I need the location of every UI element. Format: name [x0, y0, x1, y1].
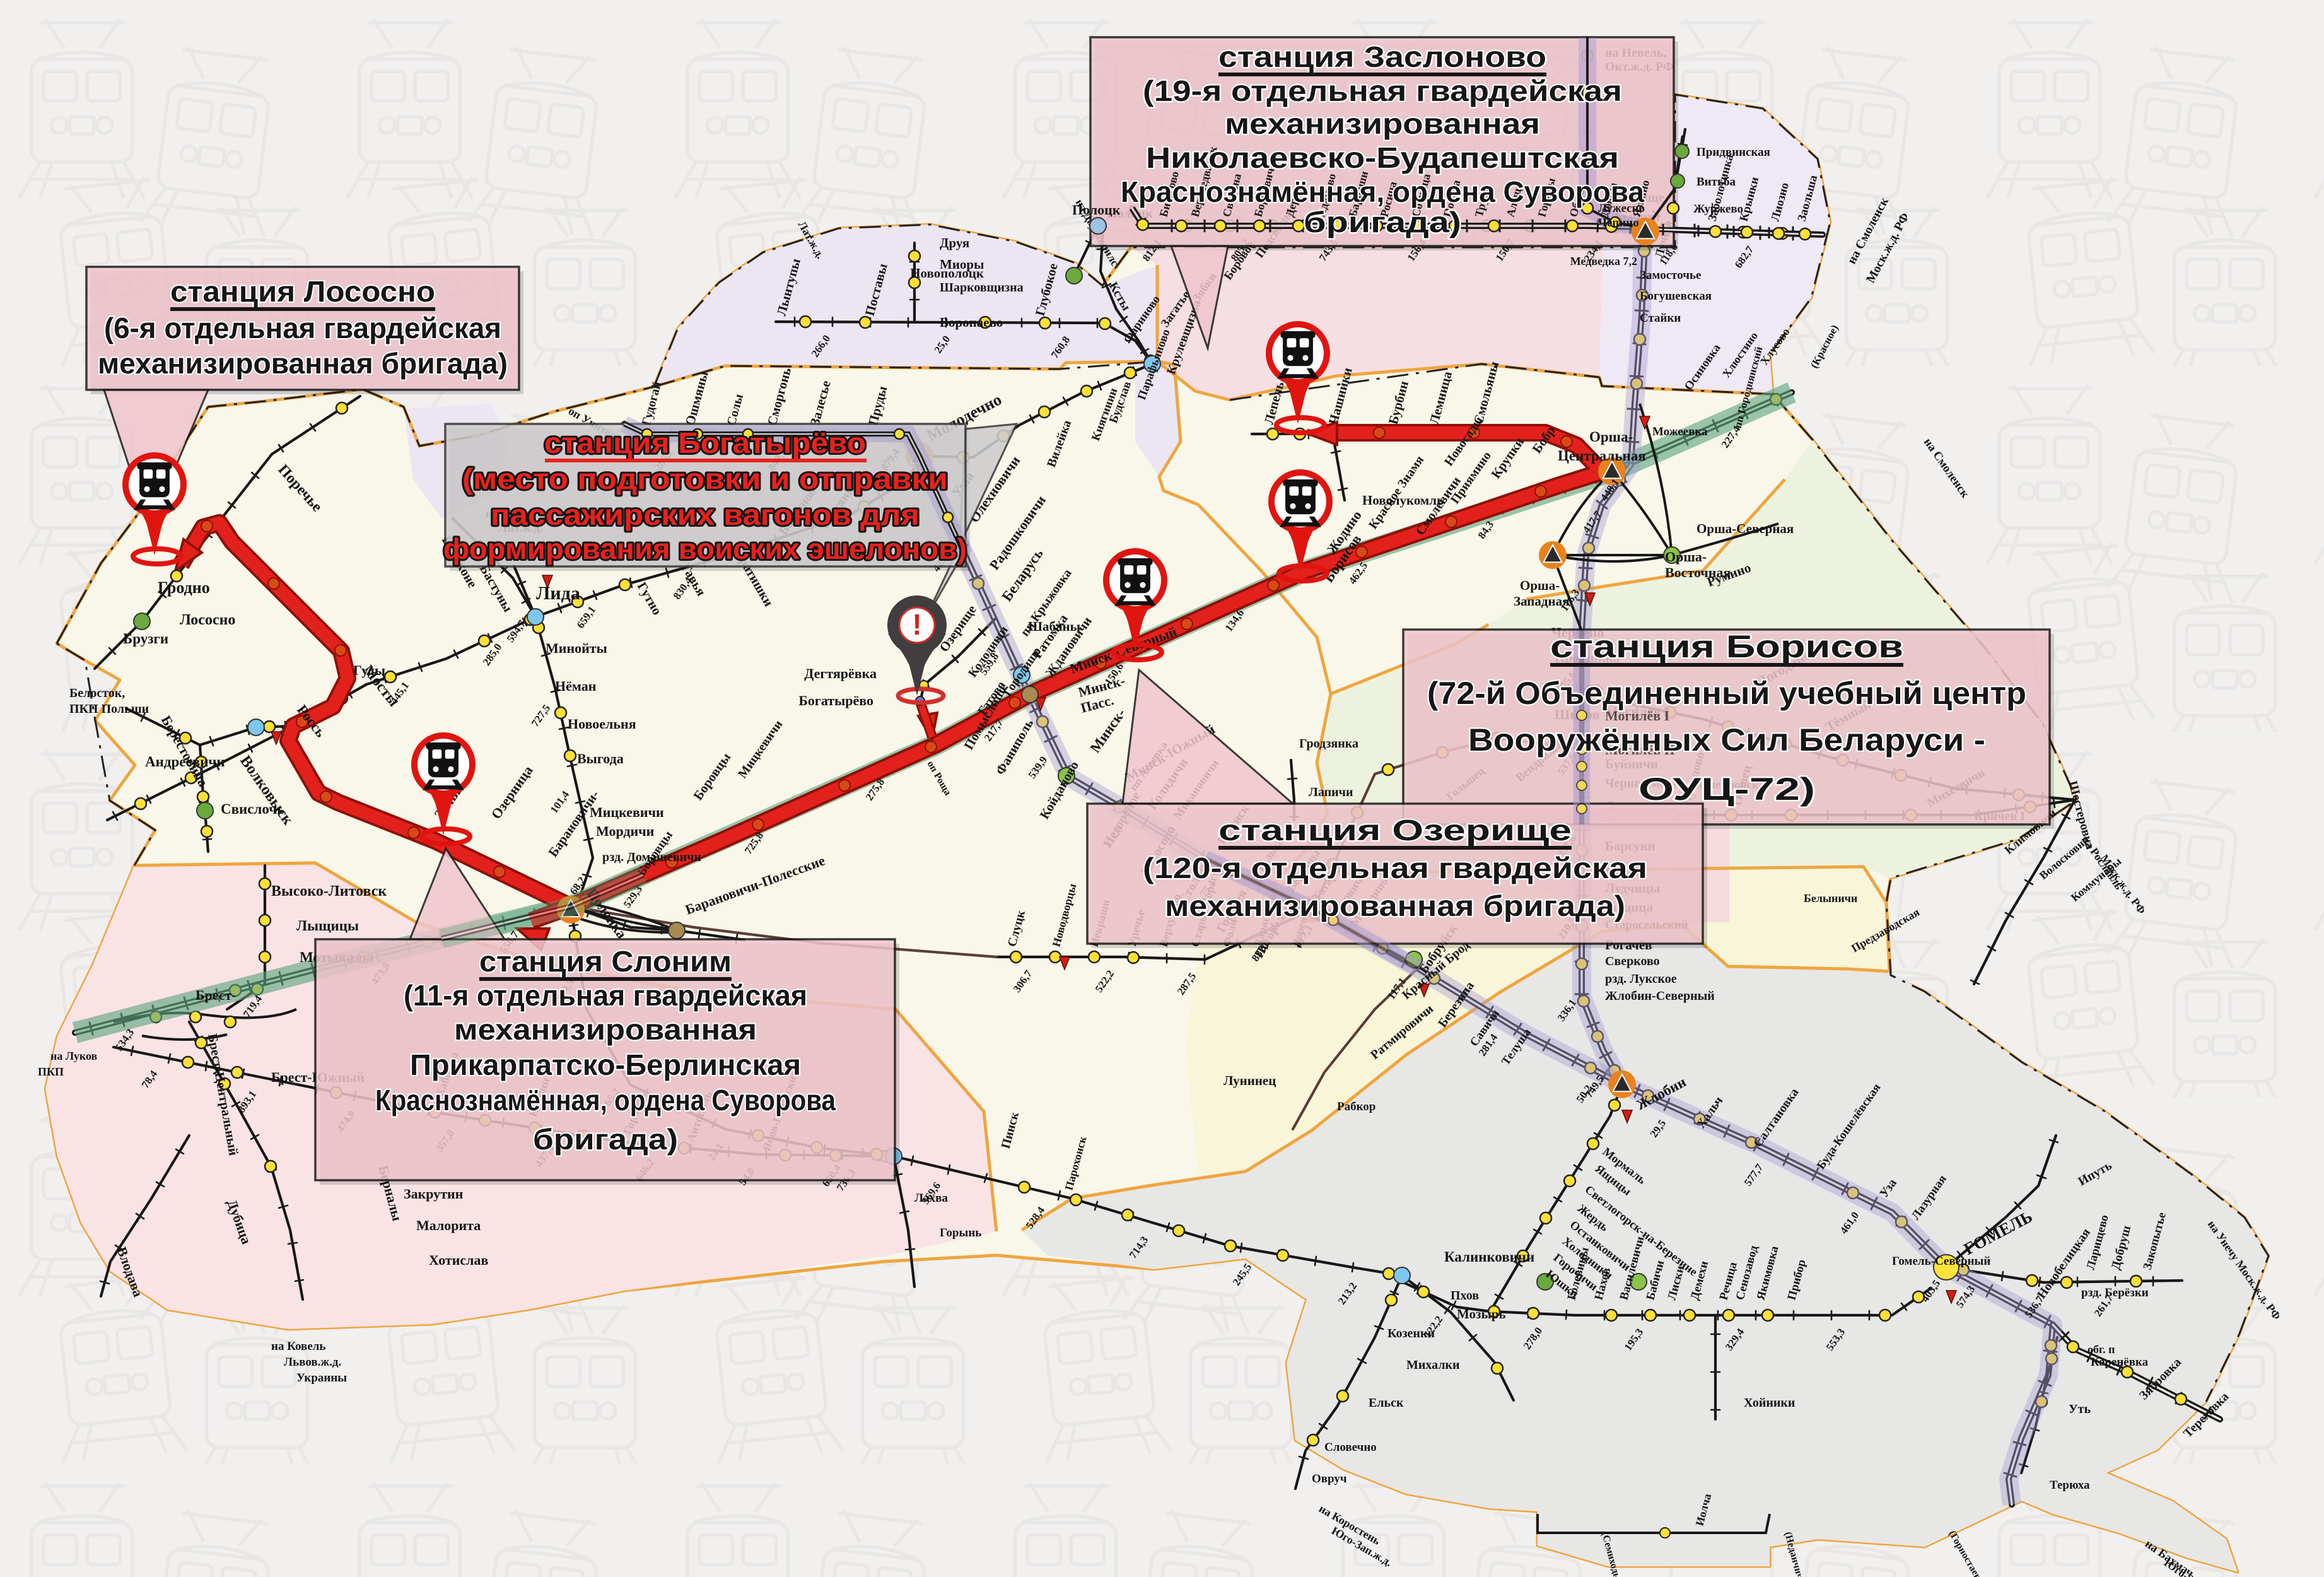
svg-text:Львов.ж.д.: Львов.ж.д.: [284, 1356, 341, 1369]
svg-text:Михалки: Михалки: [1406, 1358, 1460, 1372]
svg-text:Новополоцк: Новополоцк: [910, 266, 984, 281]
svg-text:Можеевка: Можеевка: [1652, 425, 1708, 438]
svg-text:станция Борисов: станция Борисов: [1550, 629, 1903, 664]
svg-text:Малорита: Малорита: [416, 1217, 481, 1233]
svg-text:Орша-: Орша-: [1665, 549, 1707, 565]
svg-text:Лида: Лида: [536, 583, 580, 604]
svg-text:Высоко-Литовск: Высоко-Литовск: [271, 883, 387, 900]
svg-text:(место подготовки и отправки: (место подготовки и отправки: [462, 462, 948, 495]
svg-text:Белыничи: Белыничи: [1804, 892, 1857, 905]
svg-text:станция Озерище: станция Озерище: [1218, 814, 1572, 847]
svg-text:Стайки: Стайки: [1640, 312, 1681, 325]
svg-text:Калинковичи: Калинковичи: [1444, 1249, 1534, 1265]
svg-text:Лососно: Лососно: [180, 612, 235, 628]
svg-text:ПКП Польши: ПКП Польши: [69, 702, 149, 716]
svg-text:Минойты: Минойты: [546, 640, 607, 656]
svg-text:Закрутин: Закрутин: [404, 1186, 464, 1202]
svg-text:пассажирских вагонов для: пассажирских вагонов для: [491, 498, 920, 531]
svg-text:ПКП: ПКП: [38, 1065, 64, 1078]
svg-text:Лапичи: Лапичи: [1309, 785, 1353, 799]
svg-text:Белосток,: Белосток,: [69, 686, 125, 700]
svg-text:бригада): бригада): [533, 1123, 678, 1156]
svg-text:Брузги: Брузги: [123, 631, 168, 647]
svg-text:Николаевско-Будапештская: Николаевско-Будапештская: [1146, 141, 1619, 174]
svg-text:Рабкор: Рабкор: [1337, 1100, 1375, 1113]
svg-text:Новолукомль: Новолукомль: [1362, 493, 1444, 508]
svg-text:Новоельня: Новоельня: [568, 716, 636, 732]
svg-text:Ельск: Ельск: [1369, 1396, 1404, 1410]
svg-text:Воропаево: Воропаево: [940, 315, 1003, 330]
svg-text:Богатырёво: Богатырёво: [798, 693, 873, 708]
svg-text:Друя: Друя: [940, 235, 969, 250]
svg-text:(6-я отдельная гвардейская: (6-я отдельная гвардейская: [104, 312, 501, 344]
svg-text:Овруч: Овруч: [1312, 1472, 1347, 1486]
svg-text:Коренёвка: Коренёвка: [2091, 1356, 2149, 1369]
svg-text:Нёман: Нёман: [555, 678, 597, 694]
svg-text:Центральная: Центральная: [1558, 448, 1646, 464]
svg-text:Замосточье: Замосточье: [1640, 269, 1701, 282]
svg-text:Брест-: Брест-: [196, 987, 236, 1003]
svg-text:Словечно: Словечно: [1324, 1441, 1377, 1454]
svg-text:Жлобин-Северный: Жлобин-Северный: [1605, 989, 1715, 1003]
svg-text:(120-я отдельная гвардейская: (120-я отдельная гвардейская: [1143, 852, 1647, 884]
svg-text:станция Богатырёво: станция Богатырёво: [544, 426, 866, 459]
svg-text:Уть: Уть: [2069, 1402, 2091, 1416]
svg-text:Вооружённых Сил Беларуси -: Вооружённых Сил Беларуси -: [1468, 722, 1985, 758]
svg-text:формирования воиских эшелонов): формирования воиских эшелонов): [443, 532, 967, 565]
svg-text:Украины: Украины: [296, 1371, 347, 1385]
svg-text:(11-я отдельная гвардейская: (11-я отдельная гвардейская: [404, 979, 807, 1012]
svg-text:Орша-: Орша-: [1589, 429, 1633, 445]
svg-text:Чепино: Чепино: [1598, 216, 1639, 230]
svg-text:Богушевская: Богушевская: [1640, 290, 1712, 303]
svg-text:Краснознамённая, ордена Суворо: Краснознамённая, ордена Суворова: [1121, 175, 1644, 208]
svg-text:рзд. Лукское: рзд. Лукское: [1605, 972, 1677, 986]
svg-text:(19-я отдельная гвардейская: (19-я отдельная гвардейская: [1143, 74, 1622, 107]
svg-text:Лыщицы: Лыщицы: [296, 918, 359, 934]
svg-text:Пхов: Пхов: [1451, 1289, 1479, 1303]
svg-text:механизированная бригада): механизированная бригада): [98, 347, 508, 380]
svg-text:Гродзянка: Гродзянка: [1299, 737, 1358, 751]
svg-text:Лунинец: Лунинец: [1223, 1073, 1276, 1088]
svg-text:(72-й Объединенный учебный цен: (72-й Объединенный учебный центр: [1427, 676, 2026, 711]
svg-text:Мордичи: Мордичи: [596, 823, 655, 839]
svg-text:Мицкевичи: Мицкевичи: [590, 804, 664, 820]
svg-text:Медведка 7,2: Медведка 7,2: [1570, 255, 1637, 267]
svg-text:Полоцк: Полоцк: [1072, 202, 1121, 218]
svg-text:рзд. Берёзки: рзд. Берёзки: [2081, 1286, 2149, 1299]
svg-text:механизированная: механизированная: [1225, 107, 1540, 140]
svg-text:обг. п: обг. п: [2088, 1343, 2115, 1356]
svg-text:Шабаны: Шабаны: [1028, 619, 1080, 634]
svg-text:Прикарпатско-Берлинская: Прикарпатско-Берлинская: [410, 1048, 801, 1081]
svg-text:механизированная: механизированная: [454, 1013, 757, 1046]
svg-text:Дегтярёвка: Дегтярёвка: [804, 665, 877, 681]
svg-text:на Ковель: на Ковель: [271, 1340, 325, 1353]
svg-text:Мозырь: Мозырь: [1457, 1306, 1506, 1322]
svg-text:Хотислав: Хотислав: [429, 1252, 489, 1268]
svg-text:Выгода: Выгода: [577, 751, 624, 766]
svg-text:Свислочь: Свислочь: [221, 801, 284, 817]
svg-text:на Луков: на Луков: [50, 1050, 98, 1062]
svg-text:Шарковщизна: Шарковщизна: [940, 281, 1024, 295]
svg-text:Гуды: Гуды: [353, 662, 385, 678]
svg-text:Сверково: Сверково: [1605, 954, 1660, 968]
svg-text:станция Заслоново: станция Заслоново: [1218, 40, 1546, 73]
svg-text:станция Лососно: станция Лососно: [170, 275, 435, 308]
svg-text:Орша-Северная: Орша-Северная: [1696, 521, 1794, 536]
svg-text:Терюха: Терюха: [2050, 1479, 2090, 1492]
svg-text:!: !: [912, 608, 921, 641]
svg-text:Хойники: Хойники: [1744, 1396, 1795, 1410]
svg-text:станция Слоним: станция Слоним: [479, 945, 732, 978]
svg-text:Гомель-Северный: Гомель-Северный: [1892, 1255, 1990, 1268]
svg-text:Гродно: Гродно: [158, 578, 210, 597]
svg-text:механизированная бригада): механизированная бригада): [1165, 889, 1625, 922]
svg-text:Горынь: Горынь: [940, 1226, 981, 1240]
svg-text:бригада): бригада): [1304, 206, 1461, 238]
svg-text:Орша-: Орша-: [1520, 578, 1560, 593]
svg-text:ОУЦ-72): ОУЦ-72): [1638, 771, 1815, 807]
svg-text:Краснознамённая, ордена Суворо: Краснознамённая, ордена Суворова: [375, 1084, 836, 1117]
